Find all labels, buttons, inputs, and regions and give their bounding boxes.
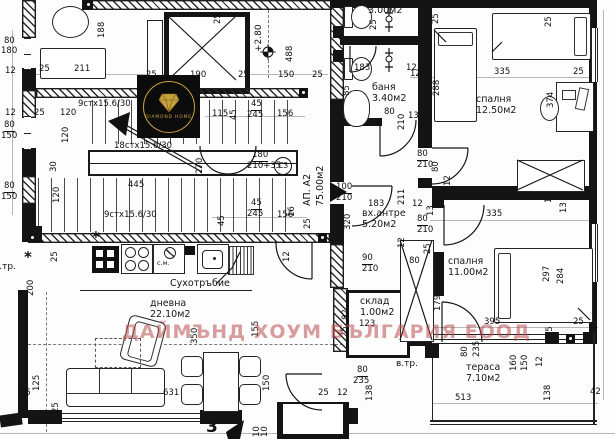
- dimension-label: 85: [343, 85, 352, 96]
- axis-number: 3: [206, 419, 218, 436]
- dimension-label: 160: [510, 355, 519, 371]
- dimension-label: 156: [277, 110, 293, 119]
- stair-label: 9стх15.6/30: [104, 211, 157, 220]
- dimension-label: 12: [412, 200, 423, 209]
- logo-badge: DIAMOND HOME: [137, 75, 200, 138]
- room-name: спалня: [476, 94, 516, 105]
- dimension-label: 25: [304, 218, 313, 229]
- stair-label: 9стх15.6/30: [78, 100, 131, 109]
- room-area: 7.10м2: [466, 373, 500, 384]
- room-name: спалня: [448, 256, 488, 267]
- dimension-label: 211: [398, 189, 407, 205]
- dimension-label: 245: [247, 111, 263, 120]
- dimension-label: 120: [53, 187, 62, 203]
- dimension-label: 12: [5, 67, 16, 76]
- watermark: ДАЙМЪНД ХОУМ БЪЛГАРИЯ ЕООД: [122, 321, 512, 343]
- room-area: 3.40м2: [372, 93, 406, 104]
- dimension-label: 183: [354, 64, 370, 73]
- dimension-label: 12: [283, 251, 292, 262]
- dimension-label: 80: [357, 366, 368, 377]
- dimension-label: 120: [60, 109, 76, 118]
- dimension-label: 80: [417, 215, 428, 226]
- dimension-label: 80: [4, 37, 15, 46]
- dimension-label: 13: [427, 205, 436, 216]
- dimension-label: 513: [455, 394, 471, 403]
- dimension-label: 245: [247, 210, 263, 219]
- floor-plan: * *: [0, 0, 615, 439]
- dimension-label: 188: [98, 22, 107, 38]
- room-name: тераса: [466, 362, 500, 373]
- dimension-label: 180: [252, 151, 268, 162]
- dimension-label: 138: [366, 385, 375, 401]
- dimension-label: 25: [545, 16, 554, 27]
- text-layer: 8018012252111881225120801508015012030251…: [0, 0, 615, 439]
- dimension-label: 25: [573, 318, 584, 327]
- dimension-label: 488: [286, 46, 295, 62]
- dimension-label: 120: [62, 127, 71, 143]
- dimension-label: 12: [410, 70, 421, 79]
- dimension-label: 25: [318, 389, 329, 398]
- dimension-label: 25: [370, 19, 379, 30]
- dimension-label: 12: [536, 356, 545, 367]
- dimension-label: 235: [353, 377, 369, 386]
- dimension-label: 150: [521, 355, 530, 371]
- room-label-living: дневна22.10м2: [150, 298, 190, 321]
- dimension-label: 284: [557, 268, 566, 284]
- dimension-label: 12: [444, 175, 453, 186]
- level-mark: +2.80: [255, 24, 264, 52]
- dimension-label: 12: [337, 389, 348, 398]
- room-label-bath-lower: баня3.40м2: [372, 82, 406, 105]
- dimension-label: 45: [251, 100, 262, 111]
- dimension-label: 25: [51, 251, 60, 262]
- dimension-label: 13: [560, 202, 569, 213]
- apartment-area: 75.00м2: [316, 166, 326, 206]
- dimension-label: 211: [74, 65, 90, 74]
- logo-brand: DIAMOND HOME: [145, 115, 192, 120]
- room-area: 5.20м2: [362, 219, 406, 230]
- dimension-label: 150: [263, 375, 272, 391]
- dimension-label: 80: [417, 150, 428, 161]
- dimension-label: 12: [398, 237, 407, 248]
- dimension-label: 90: [362, 254, 373, 265]
- dimension-label: 335: [494, 68, 510, 77]
- apartment-label: АП. А2: [303, 174, 313, 206]
- dimension-label: 80: [4, 121, 15, 132]
- room-label-bedroom-right: спалня12.50м2: [476, 94, 516, 117]
- dimension-label: 42: [590, 388, 601, 397]
- room-name: вх.антре: [362, 208, 406, 219]
- dimension-label: 320: [344, 214, 353, 230]
- room-name: склад: [360, 296, 394, 307]
- room-area: 22.10м2: [150, 309, 190, 320]
- dimension-label: 297: [543, 266, 552, 282]
- room-name: баня: [372, 82, 406, 93]
- room-name: дневна: [150, 298, 190, 309]
- room-area: 12.50м2: [476, 105, 516, 116]
- diamond-icon: [158, 93, 180, 113]
- dimension-label: 180: [1, 47, 17, 56]
- dimension-label: 445: [128, 181, 144, 190]
- room-area: 3.00м2: [368, 5, 402, 16]
- stair-label: 18стх15.6/30: [114, 142, 172, 151]
- dimension-label: 288: [433, 80, 442, 96]
- dimension-label: 335: [486, 210, 502, 219]
- dimension-label: 30: [50, 161, 59, 172]
- dimension-label: 150: [1, 132, 17, 141]
- dimension-label: 80: [409, 257, 420, 266]
- dimension-label: 210: [417, 226, 433, 235]
- dimension-label: 179: [434, 295, 443, 311]
- dimension-label: 25: [34, 109, 45, 118]
- dimension-label: 235: [473, 341, 482, 357]
- room-label-terrace: тераса7.10м2: [466, 362, 500, 385]
- room-label-storage: склад1.00м2: [360, 296, 394, 319]
- dimension-label: 13: [408, 112, 419, 121]
- dimension-label: 25: [546, 326, 555, 337]
- dimension-label: 150: [278, 71, 294, 80]
- room-label-bedroom-lower: спалня11.00м2: [448, 256, 488, 279]
- dry-riser-label: Сухотръбие: [170, 279, 230, 289]
- dimension-label: 210: [336, 194, 352, 203]
- dimension-label: 125: [33, 375, 42, 391]
- dimension-label: 115: [212, 110, 228, 119]
- dimension-label: 80: [432, 161, 441, 172]
- dimension-label: 25: [432, 13, 441, 24]
- dimension-label: 210: [362, 265, 378, 274]
- dimension-label: 200: [27, 280, 36, 296]
- dimension-label: 25: [20, 389, 31, 398]
- dimension-label: 16: [288, 206, 297, 217]
- dimension-label: 25: [214, 13, 223, 24]
- vent-pipe-label-left: в.тр.: [0, 263, 16, 272]
- dimension-label: 25: [424, 243, 433, 254]
- dimension-label: 10: [261, 426, 270, 437]
- washing-machine-label: с.м.: [157, 260, 170, 267]
- room-area: 1.00м2: [360, 307, 394, 318]
- dimension-label: 270: [196, 158, 205, 174]
- room-label-bath-upper: баня3.00м2: [368, 0, 402, 17]
- dimension-label: 80: [461, 346, 470, 357]
- dimension-label: 100: [336, 183, 352, 194]
- dimension-label: 45: [218, 215, 227, 226]
- dimension-label: 80: [4, 182, 15, 193]
- dimension-label: 25: [238, 71, 249, 80]
- dimension-label: 12: [5, 109, 16, 118]
- dimension-label: 374: [547, 92, 556, 108]
- door-code: СЗ: [274, 157, 292, 175]
- dimension-label: 210: [398, 114, 407, 130]
- room-area: 11.00м2: [448, 267, 488, 278]
- dimension-label: 25: [52, 402, 61, 413]
- logo-ring: DIAMOND HOME: [143, 81, 195, 133]
- dimension-label: 25: [312, 71, 323, 80]
- dimension-label: 45: [251, 199, 262, 210]
- dimension-label: 45: [230, 109, 239, 120]
- dimension-label: 12: [545, 192, 554, 203]
- dimension-label: 25: [573, 68, 584, 77]
- vent-pipe-label-right: в.тр.: [396, 360, 418, 369]
- room-label-entry-hall: вх.антре5.20м2: [362, 208, 406, 231]
- dimension-label: 138: [544, 385, 553, 401]
- dimension-label: 631: [163, 389, 179, 398]
- dimension-label: 82: [342, 309, 351, 320]
- dimension-label: 80: [384, 108, 395, 117]
- dimension-label: 150: [1, 193, 17, 202]
- dimension-label: 25: [39, 65, 50, 74]
